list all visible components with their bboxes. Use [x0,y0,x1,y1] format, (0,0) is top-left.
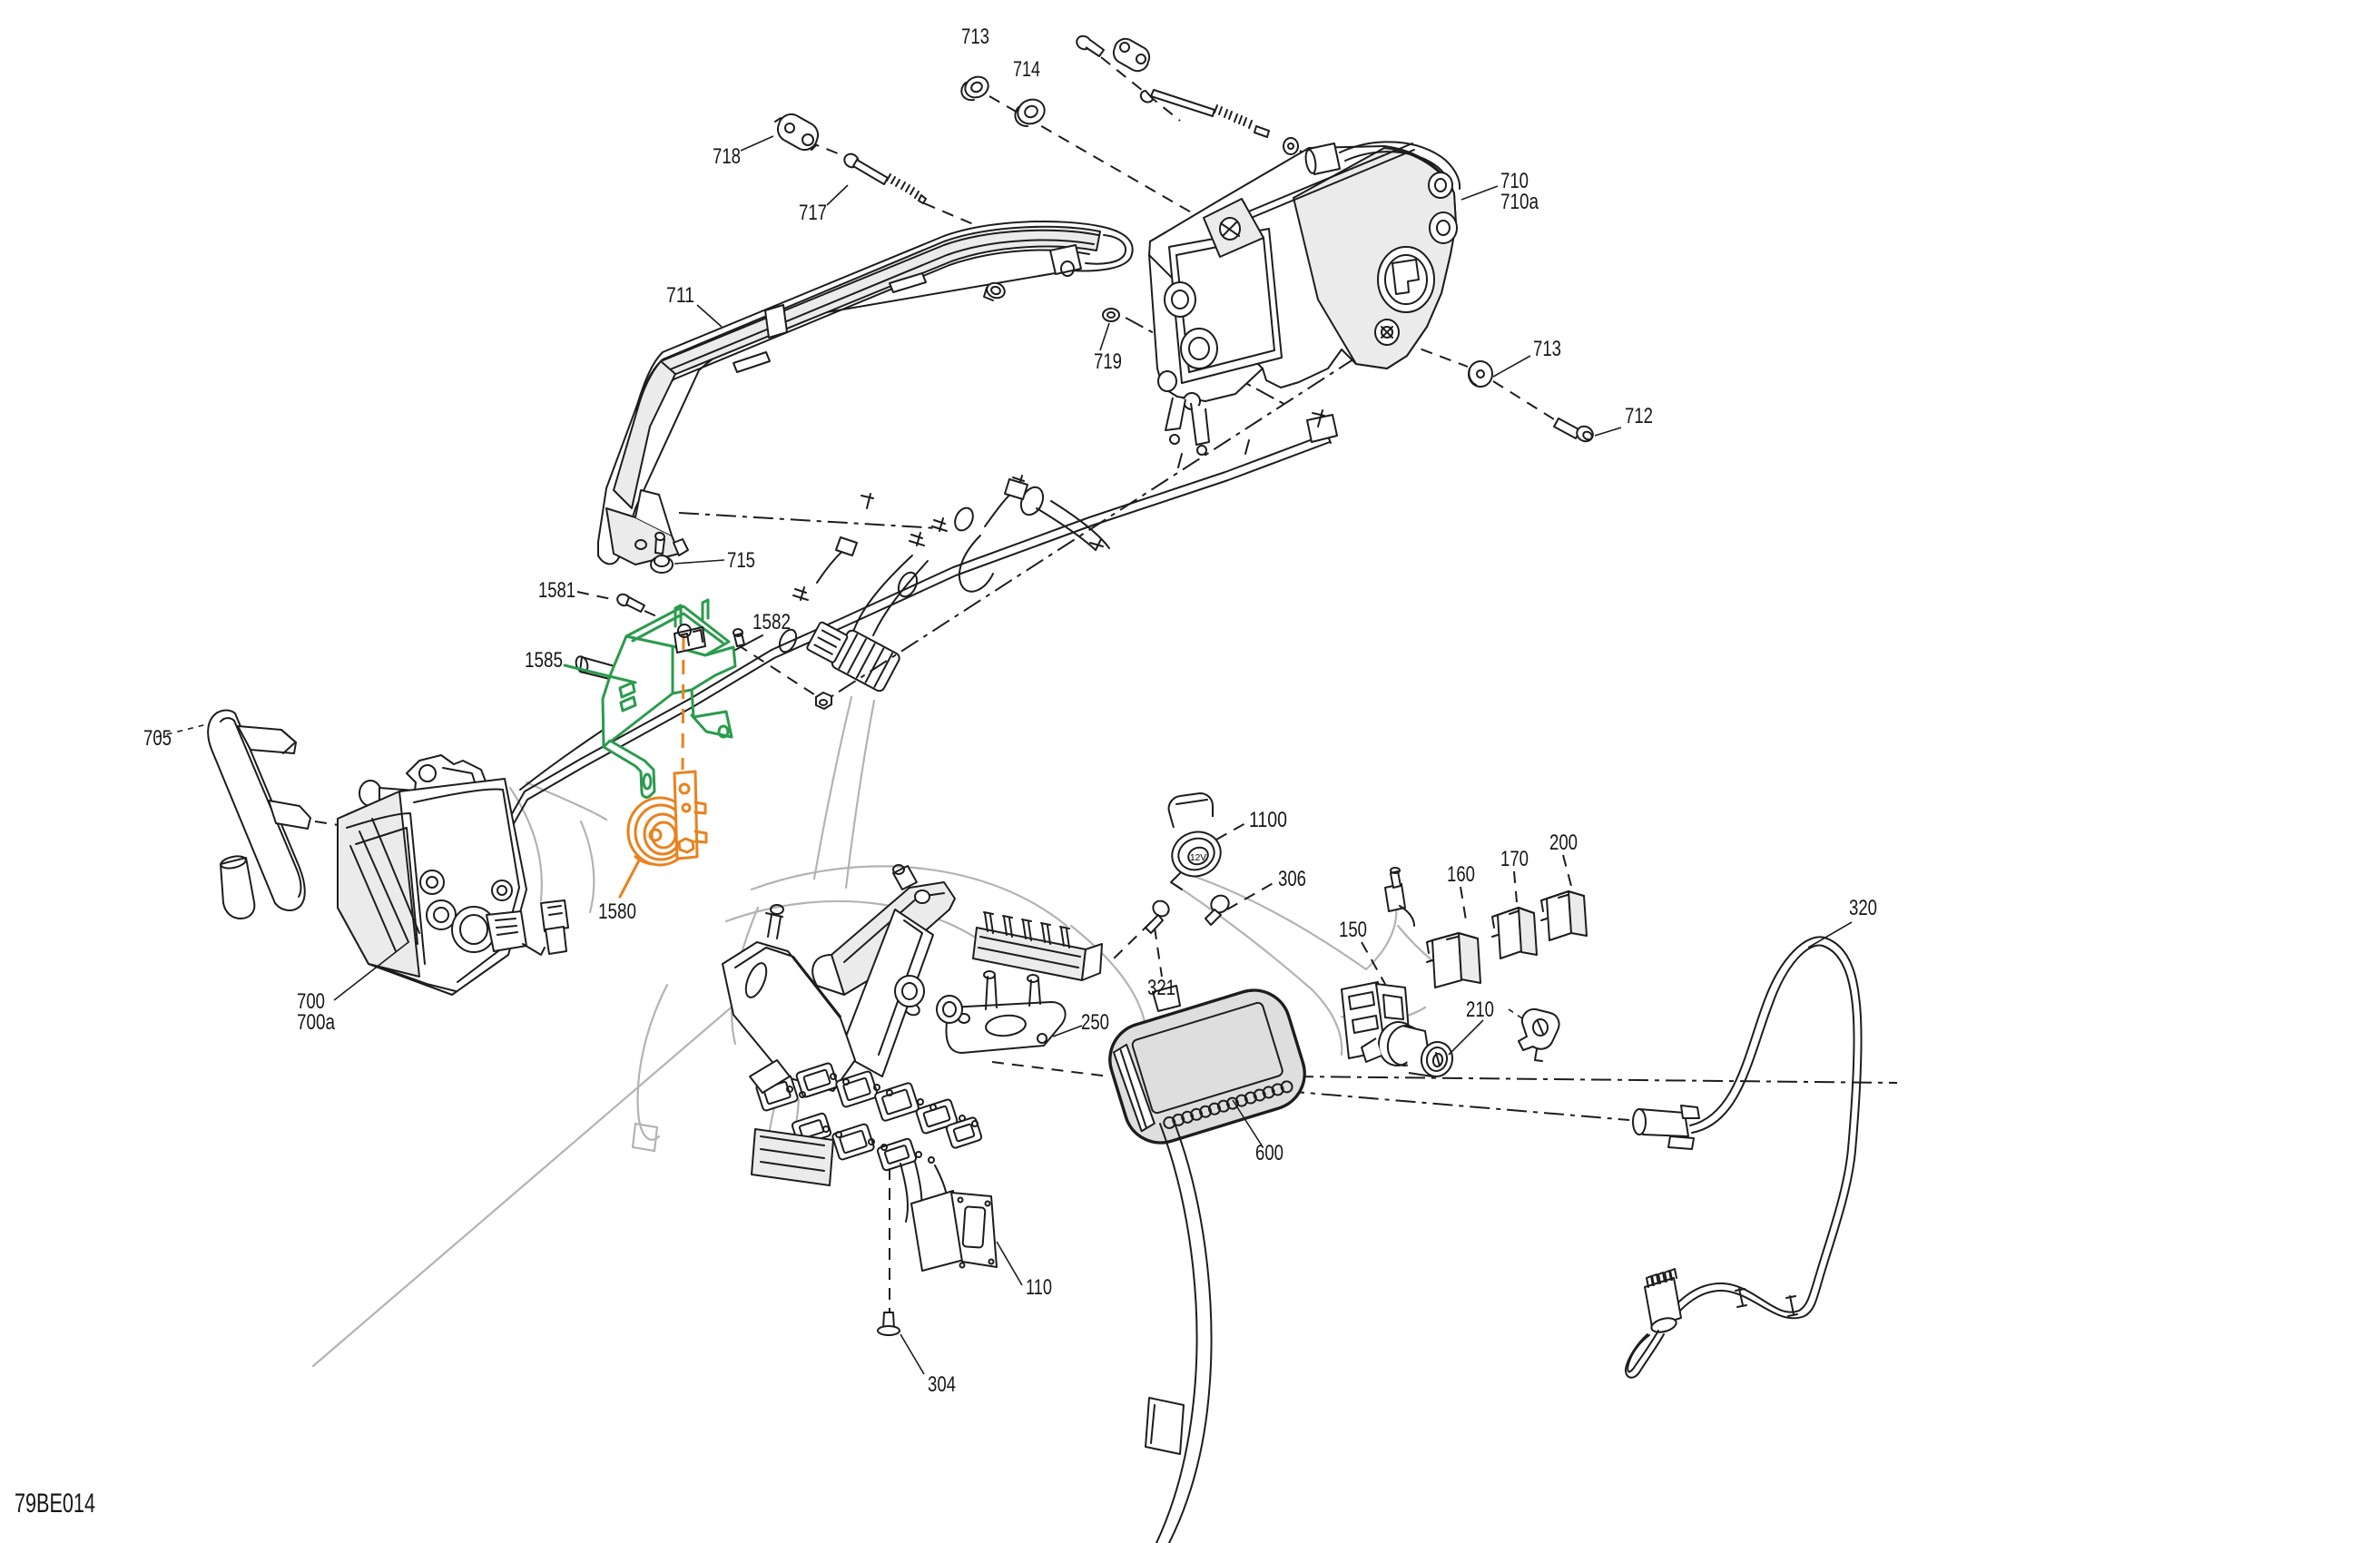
svg-text:714: 714 [1013,57,1040,82]
svg-text:718: 718 [713,144,741,169]
svg-text:12V: 12V [1190,853,1206,863]
svg-text:700a: 700a [297,1010,336,1035]
svg-text:170: 170 [1500,847,1529,871]
svg-text:150: 150 [1339,918,1367,942]
svg-text:717: 717 [799,201,827,225]
svg-text:1580: 1580 [598,899,636,924]
svg-text:705: 705 [143,726,172,751]
svg-text:715: 715 [727,548,755,573]
svg-text:320: 320 [1849,896,1877,920]
svg-text:306: 306 [1278,867,1306,891]
svg-text:160: 160 [1447,862,1475,887]
svg-text:79BE014: 79BE014 [15,1489,95,1518]
svg-text:200: 200 [1549,830,1578,855]
svg-text:712: 712 [1625,404,1653,428]
svg-text:1582: 1582 [752,610,791,634]
svg-text:713: 713 [1533,337,1561,361]
svg-text:110: 110 [1026,1275,1052,1300]
svg-text:710a: 710a [1500,190,1539,214]
svg-text:600: 600 [1255,1141,1283,1165]
svg-text:1581: 1581 [538,578,575,603]
svg-text:250: 250 [1081,1010,1109,1035]
svg-text:719: 719 [1094,349,1122,374]
svg-text:711: 711 [666,283,694,308]
svg-text:1585: 1585 [525,648,563,673]
svg-text:321: 321 [1147,976,1175,1000]
svg-text:1100: 1100 [1249,808,1287,832]
svg-text:304: 304 [928,1372,956,1397]
svg-text:713: 713 [961,25,989,49]
svg-text:210: 210 [1466,998,1494,1022]
